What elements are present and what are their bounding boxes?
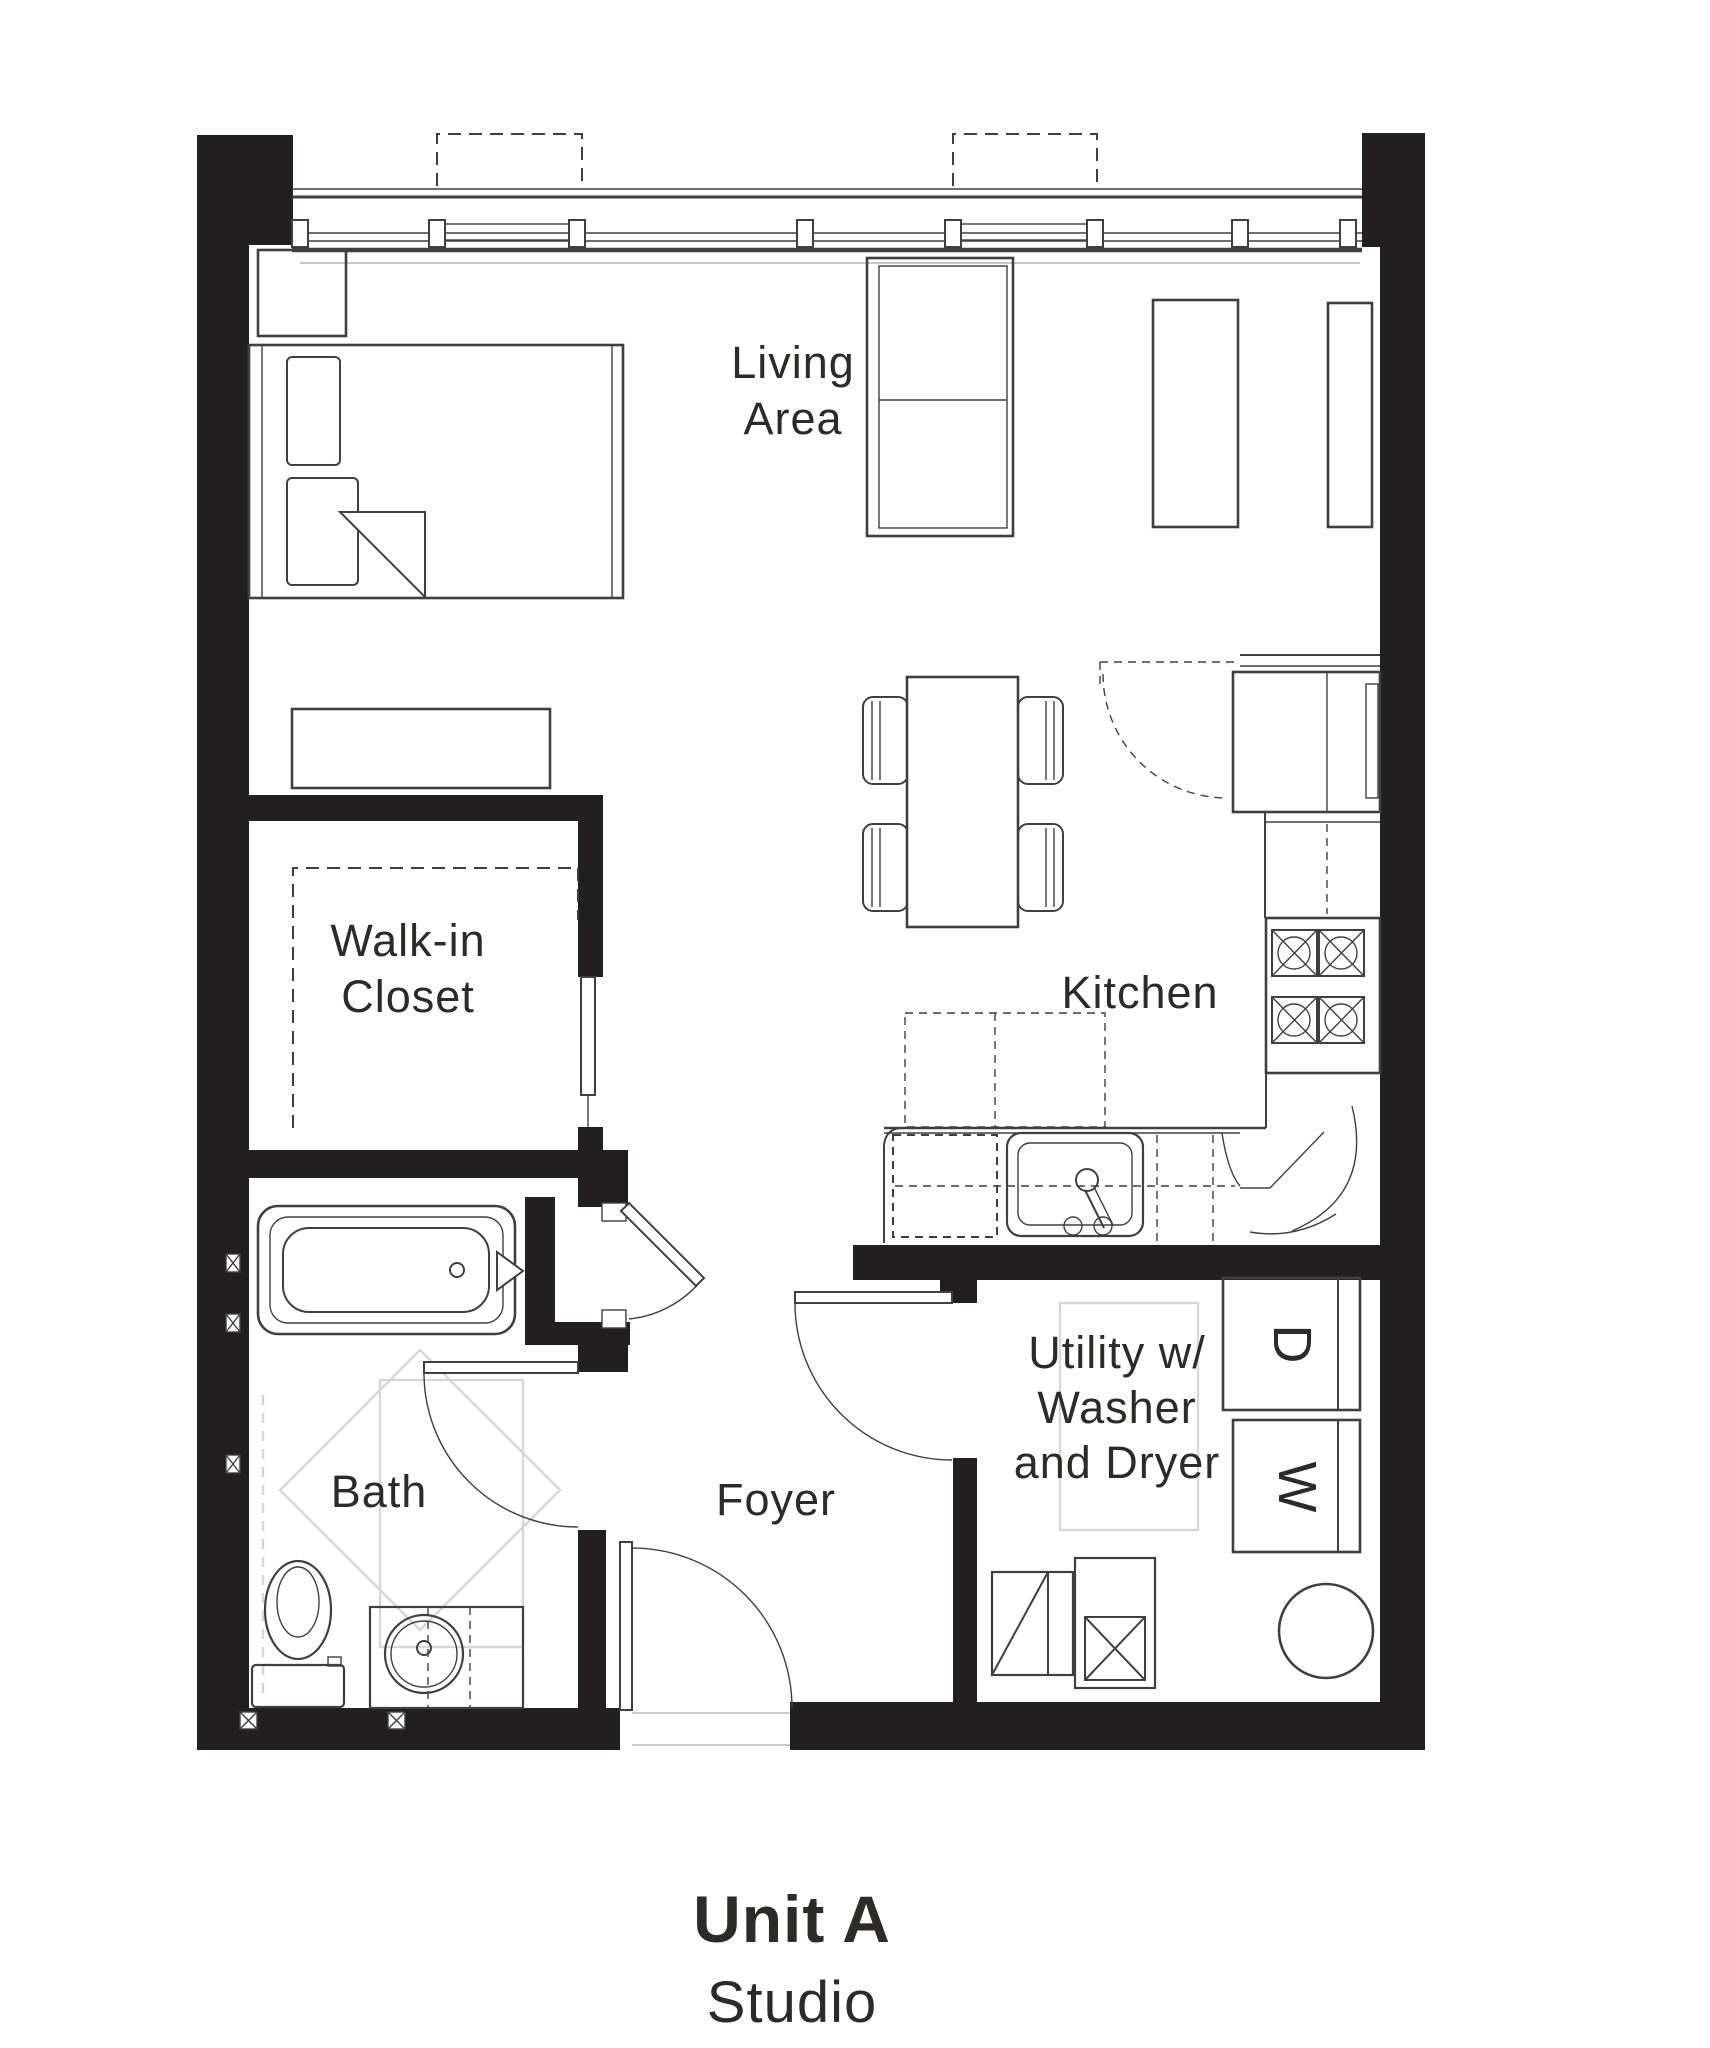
bath-door-swing	[424, 1373, 578, 1527]
linen-door-leaf	[621, 1203, 704, 1286]
hvac-unit	[992, 1572, 1073, 1675]
label-utility-line2: Washer	[1037, 1382, 1196, 1433]
label-washer: W	[1267, 1462, 1327, 1513]
kitchen-sink	[1007, 1133, 1143, 1236]
console-shelf	[1328, 303, 1372, 527]
label-foyer: Foyer	[716, 1474, 836, 1525]
sofa	[867, 258, 1013, 536]
wall-linen-jamb-top	[578, 1150, 628, 1207]
window-wall	[292, 134, 1362, 263]
closet-door-slab	[581, 977, 595, 1095]
wall-bottom-right	[790, 1702, 1425, 1750]
wall-closet-right-stub	[578, 1127, 603, 1150]
toilet	[252, 1561, 344, 1707]
wall-bathdoor-jamb	[578, 1332, 628, 1372]
upper-cabinets-dashed	[905, 1013, 1105, 1127]
side-table	[1153, 300, 1238, 527]
corner-cabinet	[1222, 1106, 1357, 1234]
wall-left	[197, 135, 249, 1750]
wall-closet-right	[578, 795, 603, 977]
label-dryer: D	[1262, 1325, 1322, 1364]
label-bath: Bath	[331, 1466, 428, 1517]
living-furniture	[867, 258, 1372, 536]
wall-utility-left	[953, 1458, 977, 1750]
burner	[1319, 930, 1364, 976]
label-closet-line2: Closet	[341, 971, 475, 1022]
label-living-line2: Area	[743, 393, 842, 444]
pantry-door-swing-dashed	[1103, 674, 1227, 798]
bed	[249, 345, 623, 598]
corner-swing-arc	[1292, 1106, 1357, 1231]
water-heater	[1279, 1584, 1373, 1678]
dining-table	[907, 677, 1018, 927]
burner	[1319, 997, 1364, 1043]
linen-closet-door	[621, 1203, 704, 1319]
utility-door-swing	[795, 1303, 952, 1460]
utility-door-leaf	[795, 1292, 952, 1303]
wall-kitchen-utility	[853, 1245, 1425, 1280]
wall-bottom-bath	[197, 1708, 620, 1750]
wall-right	[1380, 133, 1425, 1750]
wall-bath-top	[197, 1150, 628, 1178]
bathtub	[258, 1206, 523, 1334]
dining-chair	[1018, 824, 1063, 911]
floor-plan-drawing: Living Area Walk-in Closet Kitchen Bath …	[0, 0, 1710, 2048]
stove	[1266, 918, 1380, 1073]
wall-pier-top-left	[197, 135, 293, 245]
linen-jamb-block-bottom	[602, 1310, 626, 1328]
pillow	[287, 478, 358, 585]
label-closet-line1: Walk-in	[330, 915, 485, 966]
balcony-dashed-outline-right	[953, 134, 1097, 186]
vanity-sink	[370, 1607, 523, 1708]
pantry-dashed-cabinet	[1100, 662, 1240, 798]
plan-subtitle: Studio	[707, 1970, 877, 2035]
dining-chair	[863, 697, 908, 784]
wall-foyer-partition	[578, 1530, 606, 1708]
bath-door-leaf	[424, 1362, 578, 1373]
entry-door	[620, 1542, 792, 1710]
pillow	[287, 357, 340, 465]
burner	[1272, 997, 1317, 1043]
linen-door-swing	[629, 1282, 700, 1319]
label-utility-line3: and Dryer	[1014, 1437, 1221, 1488]
tub-drain	[450, 1263, 464, 1277]
wall-closet-top	[249, 795, 603, 821]
entry-door-swing	[632, 1548, 792, 1708]
label-utility-line1: Utility w/	[1028, 1327, 1206, 1378]
counter-mid	[1265, 812, 1380, 918]
dresser	[292, 709, 550, 788]
bath-door	[424, 1362, 578, 1527]
utility-door	[795, 1292, 952, 1460]
floor-plan-page: Living Area Walk-in Closet Kitchen Bath …	[0, 0, 1710, 2048]
dining-chair	[1018, 697, 1063, 784]
dining-set	[863, 677, 1063, 927]
refrigerator	[1233, 672, 1380, 812]
plan-title: Unit A	[693, 1882, 891, 1956]
furnace-unit	[1075, 1558, 1155, 1688]
window-operable-section	[441, 224, 573, 240]
bedroom-furniture	[249, 250, 623, 788]
tub-spout	[497, 1252, 523, 1290]
entry-door-leaf	[620, 1542, 632, 1710]
burner	[1272, 930, 1317, 976]
label-kitchen: Kitchen	[1061, 967, 1218, 1018]
balcony-dashed-outline-left	[437, 134, 582, 186]
dining-chair	[863, 824, 908, 911]
window-operable-section	[957, 224, 1093, 240]
label-living-line1: Living	[731, 337, 855, 388]
